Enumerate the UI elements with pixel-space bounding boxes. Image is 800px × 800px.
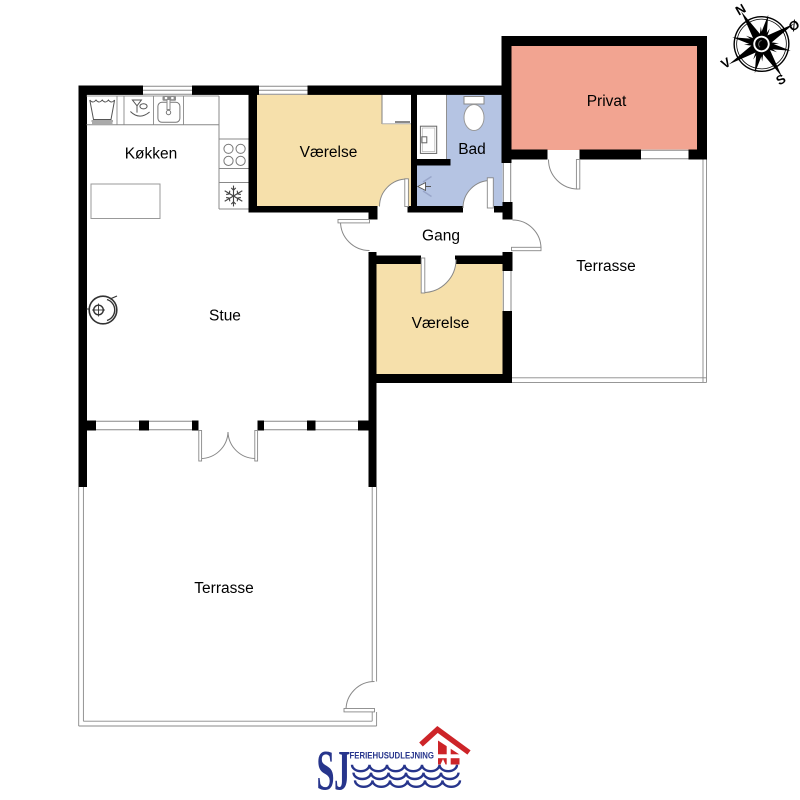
svg-text:Køkken: Køkken xyxy=(125,146,178,163)
svg-text:Terrasse: Terrasse xyxy=(576,258,635,275)
svg-text:Værelse: Værelse xyxy=(300,144,358,161)
svg-text:Stue: Stue xyxy=(209,308,241,325)
svg-text:Gang: Gang xyxy=(422,228,460,245)
svg-text:Værelse: Værelse xyxy=(412,315,470,332)
svg-text:Bad: Bad xyxy=(458,141,486,158)
svg-text:SJ: SJ xyxy=(317,740,350,800)
svg-text:FERIEHUSUDLEJNING: FERIEHUSUDLEJNING xyxy=(350,750,435,761)
svg-text:Terrasse: Terrasse xyxy=(194,580,253,597)
svg-text:Privat: Privat xyxy=(587,93,627,110)
